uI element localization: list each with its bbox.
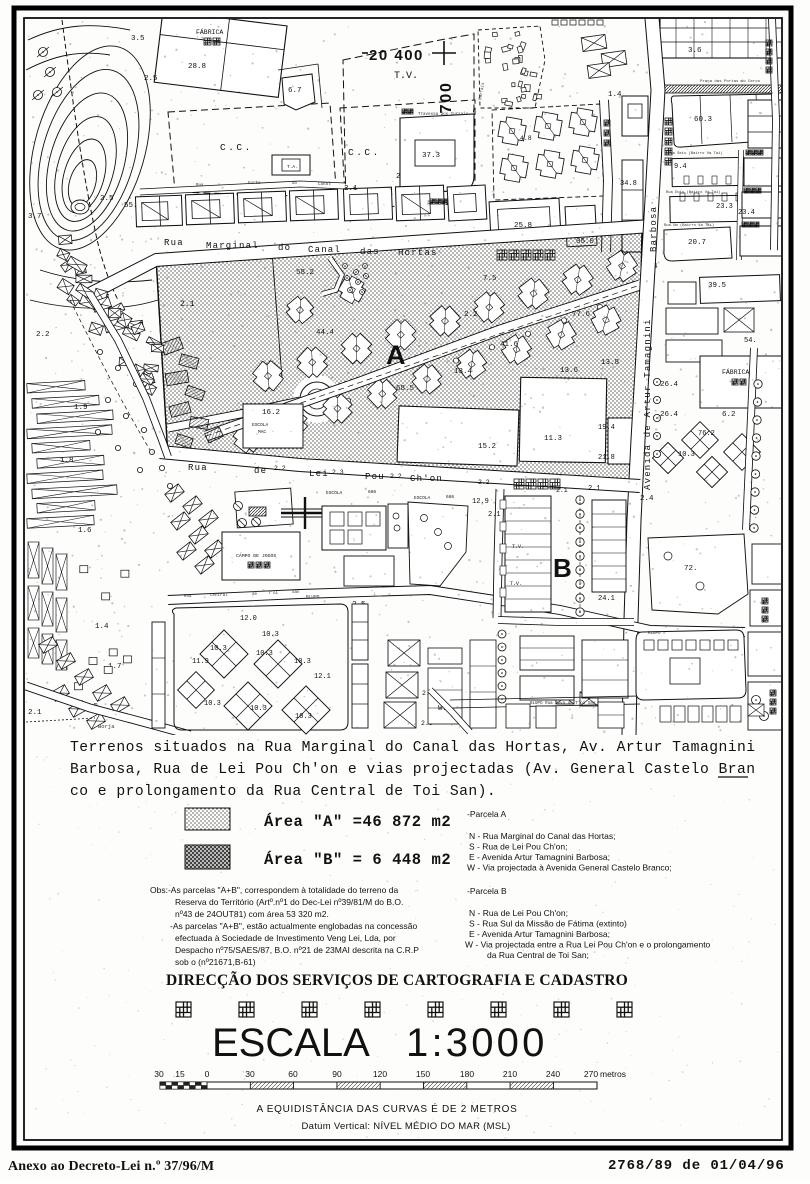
svg-text:2.2: 2.2: [36, 331, 50, 339]
svg-text:3.7: 3.7: [28, 213, 42, 221]
svg-text:Hortas: Hortas: [398, 248, 438, 258]
svg-text:30: 30: [154, 1069, 164, 1079]
svg-text:1.6: 1.6: [78, 527, 92, 535]
svg-text:28.8: 28.8: [188, 63, 206, 71]
svg-text:2768/89 de 01/04/96: 2768/89 de 01/04/96: [608, 1158, 785, 1174]
svg-text:das: das: [360, 247, 380, 257]
svg-text:da Rua Central de Toi San;: da Rua Central de Toi San;: [487, 950, 589, 960]
svg-text:34.8: 34.8: [620, 180, 637, 188]
svg-text:15: 15: [175, 1069, 185, 1079]
svg-text:BLUPO: BLUPO: [306, 594, 320, 600]
svg-text:-As parcelas "A+B", estão actu: -As parcelas "A+B", estão actualmente en…: [170, 921, 418, 931]
svg-text:1.4: 1.4: [95, 623, 109, 631]
svg-text:Canal: Canal: [308, 245, 341, 255]
svg-text:FÁBRICA: FÁBRICA: [196, 28, 223, 36]
svg-text:do: do: [278, 243, 291, 253]
svg-text:270: 270: [584, 1069, 598, 1079]
svg-text:ESCOLA: ESCOLA: [414, 495, 431, 501]
svg-text:B: B: [553, 553, 572, 583]
svg-text:nº43 de 24OUT81) com área 53 3: nº43 de 24OUT81) com área 53 320 m2.: [175, 909, 329, 919]
svg-text:ESCOLA: ESCOLA: [252, 422, 269, 428]
svg-text:San: San: [292, 591, 300, 595]
svg-text:E - Avenida Artur Tamagnini Ba: E - Avenida Artur Tamagnini Barbosa;: [469, 852, 610, 862]
svg-text:30: 30: [245, 1069, 255, 1079]
svg-text:2.1: 2.1: [344, 185, 358, 193]
svg-text:4.8: 4.8: [520, 135, 532, 142]
svg-text:Rua: Rua: [164, 238, 184, 248]
svg-text:N - Rua de Lei Pou Ch'on;: N - Rua de Lei Pou Ch'on;: [469, 908, 568, 918]
svg-text:10.3: 10.3: [262, 631, 279, 639]
svg-text:Rua: Rua: [184, 595, 192, 599]
svg-text:Lei: Lei: [309, 469, 329, 479]
svg-text:KLUPO: KLUPO: [648, 632, 661, 636]
svg-text:20.7: 20.7: [688, 239, 706, 247]
svg-text:68.5: 68.5: [396, 385, 415, 393]
svg-text:60: 60: [288, 1069, 298, 1079]
svg-text:21.8: 21.8: [598, 454, 615, 462]
svg-text:C.C.: C.C.: [348, 147, 381, 158]
svg-text:2.4: 2.4: [640, 495, 654, 503]
svg-text:10.3: 10.3: [204, 700, 221, 708]
svg-text:15.2: 15.2: [478, 443, 496, 451]
svg-text:Marginal: Marginal: [206, 241, 259, 251]
svg-text:Ch'on: Ch'on: [410, 474, 443, 484]
svg-text:Forte: Forte: [248, 182, 261, 186]
svg-text:12.0: 12.0: [240, 615, 257, 623]
svg-text:39.5: 39.5: [708, 282, 727, 290]
svg-text:2.3: 2.3: [332, 469, 344, 476]
svg-text:efectuada à Sociedade de Inve: efectuada à Sociedade de Investimento Ve…: [175, 933, 396, 943]
svg-text:1.8: 1.8: [60, 457, 74, 465]
svg-text:1:3000: 1:3000: [406, 1021, 548, 1065]
svg-text:2.2: 2.2: [274, 465, 286, 472]
svg-text:10.3: 10.3: [295, 713, 312, 721]
svg-text:13.8: 13.8: [601, 359, 619, 367]
svg-text:11.3: 11.3: [544, 435, 563, 443]
svg-text:55.: 55.: [124, 202, 138, 210]
svg-text:W - Via projectada à Avenida G: W - Via projectada à Avenida General Cas…: [467, 863, 672, 873]
svg-text:76.2: 76.2: [698, 430, 715, 438]
svg-text:19.4: 19.4: [598, 424, 615, 432]
svg-text:MAC: MAC: [258, 429, 266, 435]
svg-text:N - Rua Marginal do Canal das: N - Rua Marginal do Canal das Hortas;: [469, 831, 615, 841]
svg-text:10.3: 10.3: [256, 650, 273, 658]
svg-text:23.4: 23.4: [738, 209, 755, 217]
svg-text:Pou: Pou: [365, 472, 385, 482]
svg-text:Travessa dos Currais: Travessa dos Currais: [418, 112, 469, 117]
svg-text:2.1: 2.1: [488, 511, 501, 519]
svg-text:10.3: 10.3: [294, 658, 311, 666]
svg-text:23.3: 23.3: [716, 203, 733, 211]
svg-text:120: 120: [373, 1069, 387, 1079]
svg-text:54.: 54.: [744, 337, 757, 345]
svg-text:6.2: 6.2: [722, 411, 736, 419]
svg-text:12.9: 12.9: [472, 498, 489, 506]
svg-text:Praça das Portas do Cerco: Praça das Portas do Cerco: [700, 79, 761, 84]
svg-text:Avenida de Artur Tamagnini: Avenida de Artur Tamagnini: [643, 318, 653, 490]
svg-text:13.6: 13.6: [560, 367, 579, 375]
svg-text:0: 0: [205, 1069, 210, 1079]
svg-text:12.1: 12.1: [314, 673, 331, 681]
svg-text:S - Rua Sul da Missão de Fátim: S - Rua Sul da Missão de Fátima (extinto…: [469, 919, 627, 929]
svg-text:W - Via projectada entre a Rua: W - Via projectada entre a Rua Lei Pou C…: [465, 940, 711, 950]
svg-text:Rua Dois (Bairro Va Tai): Rua Dois (Bairro Va Tai): [666, 190, 721, 195]
svg-text:3.5: 3.5: [131, 35, 145, 43]
svg-text:ESCALA: ESCALA: [212, 1021, 370, 1065]
svg-text:11.9: 11.9: [192, 658, 209, 666]
svg-text:T.V.: T.V.: [394, 71, 418, 82]
svg-text:24.1: 24.1: [598, 595, 615, 603]
svg-text:Borja: Borja: [98, 723, 115, 730]
svg-text:Rua: Rua: [196, 184, 204, 188]
svg-text:37.3: 37.3: [422, 152, 441, 160]
svg-text:150: 150: [416, 1069, 430, 1079]
svg-text:CAMPO DE JOGOS: CAMPO DE JOGOS: [236, 553, 276, 559]
svg-text:10.3: 10.3: [210, 645, 227, 653]
svg-text:T'oi: T'oi: [268, 591, 279, 596]
svg-text:C.C.: C.C.: [220, 142, 253, 153]
svg-text:13.4: 13.4: [454, 368, 473, 376]
svg-text:Reserva do Território (Artº.nº: Reserva do Território (Artº.nº1 do Dec-L…: [175, 897, 403, 907]
svg-text:666: 666: [446, 494, 454, 500]
svg-text:16.2: 16.2: [262, 409, 280, 417]
svg-text:FÁBRICA: FÁBRICA: [722, 368, 749, 376]
svg-text:sob o (nº21671,B-61): sob o (nº21671,B-61): [175, 957, 256, 967]
svg-text:Barbosa, Rua de Lei Pou Ch'on: Barbosa, Rua de Lei Pou Ch'on e vias pro…: [70, 762, 756, 778]
svg-text:26.4: 26.4: [660, 381, 679, 389]
svg-text:-Parcela A: -Parcela A: [467, 809, 507, 819]
svg-text:Canal: Canal: [318, 182, 331, 187]
svg-text:2.2: 2.2: [478, 479, 490, 486]
svg-text:72.: 72.: [684, 565, 698, 573]
svg-text:do: do: [292, 181, 298, 186]
svg-text:44.4: 44.4: [316, 329, 335, 337]
svg-text:Obs:-As parcelas "A+B", corres: Obs:-As parcelas "A+B", correspondem à t…: [150, 885, 398, 895]
svg-text:A: A: [386, 340, 406, 370]
svg-text:2.1: 2.1: [556, 487, 568, 494]
svg-text:240: 240: [546, 1069, 560, 1079]
svg-text:Datum Vertical: NÍVEL MÉDIO DO: Datum Vertical: NÍVEL MÉDIO DO MAR (MSL): [301, 1121, 510, 1132]
svg-text:Rua: Rua: [188, 463, 208, 473]
svg-text:T.A.: T.A.: [287, 164, 298, 170]
svg-text:9.4: 9.4: [674, 163, 687, 171]
svg-text:1.9: 1.9: [74, 404, 88, 412]
svg-text:41.6: 41.6: [500, 341, 519, 349]
svg-text:2.5: 2.5: [100, 195, 114, 203]
svg-text:60.3: 60.3: [694, 116, 713, 124]
svg-text:7.5: 7.5: [483, 275, 497, 283]
svg-text:3.6: 3.6: [688, 47, 702, 55]
svg-text:co e prolongamento da Rua Cent: co e prolongamento da Rua Central de Toi…: [70, 784, 496, 800]
svg-text:210: 210: [503, 1069, 517, 1079]
svg-text:180: 180: [460, 1069, 474, 1079]
svg-text:Área "A" =46 872 m2: Área "A" =46 872 m2: [264, 813, 451, 831]
svg-text:Barbosa: Barbosa: [649, 206, 659, 252]
svg-text:Rua Seis (Bairro Va Tai): Rua Seis (Bairro Va Tai): [668, 151, 723, 156]
svg-text:2.2: 2.2: [464, 311, 478, 319]
svg-text:E - Avenida Artur Tamagnini Ba: E - Avenida Artur Tamagnini Barbosa;: [469, 929, 610, 939]
svg-text:2.1: 2.1: [28, 709, 42, 717]
svg-text:26.4: 26.4: [660, 411, 679, 419]
svg-text:666: 666: [368, 489, 376, 495]
svg-text:58.2: 58.2: [296, 269, 314, 277]
svg-text:de: de: [254, 466, 267, 476]
svg-text:S - Rua de Lei Pou Ch'on;: S - Rua de Lei Pou Ch'on;: [469, 842, 568, 852]
svg-text:10.3: 10.3: [250, 705, 267, 713]
svg-text:metros: metros: [600, 1069, 626, 1079]
svg-text:Terrenos situados na Rua Margi: Terrenos situados na Rua Marginal do Can…: [70, 740, 756, 756]
svg-text:Anexo ao Decreto-Lei n.º 37/96: Anexo ao Decreto-Lei n.º 37/96/M: [8, 1159, 214, 1174]
svg-text:2.2: 2.2: [390, 473, 402, 480]
svg-text:A EQUIDISTÂNCIA DAS CURVAS É D: A EQUIDISTÂNCIA DAS CURVAS É DE 2 METROS: [256, 1102, 517, 1115]
svg-text:de: de: [252, 592, 258, 597]
svg-text:90: 90: [332, 1069, 342, 1079]
svg-text:Despacho nº75/SAES/87, B.O. nº: Despacho nº75/SAES/87, B.O. nº21 de 23MA…: [175, 945, 419, 955]
svg-text:DIRECÇÃO DOS SERVIÇOS DE C: DIRECÇÃO DOS SERVIÇOS DE CARTOGRAFIA E C…: [166, 971, 628, 989]
svg-text:-Parcela B: -Parcela B: [467, 886, 507, 896]
svg-text:77.6: 77.6: [572, 311, 591, 319]
svg-text:2.5: 2.5: [144, 75, 158, 83]
svg-text:Área "B" = 6 448 m2: Área "B" = 6 448 m2: [264, 851, 451, 869]
svg-text:2.1: 2.1: [180, 300, 195, 309]
svg-text:Rua Um (Bairro Va Tai): Rua Um (Bairro Va Tai): [664, 223, 714, 228]
svg-text:2.1: 2.1: [588, 485, 601, 493]
svg-text:20 400: 20 400: [369, 47, 424, 64]
svg-text:6.7: 6.7: [288, 87, 302, 95]
svg-text:T.V.: T.V.: [512, 544, 524, 550]
svg-text:10.3: 10.3: [678, 451, 695, 459]
svg-text:Central: Central: [210, 593, 228, 598]
